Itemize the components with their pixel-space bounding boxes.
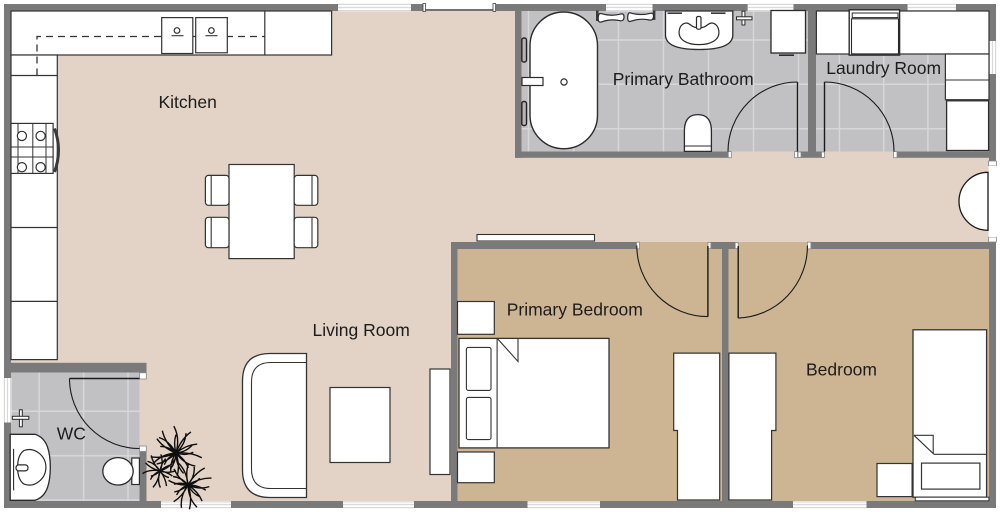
svg-text:Laundry Room: Laundry Room xyxy=(826,58,941,78)
svg-text:WC: WC xyxy=(57,423,86,443)
svg-text:Primary Bathroom: Primary Bathroom xyxy=(613,69,754,89)
svg-text:Kitchen: Kitchen xyxy=(159,92,217,112)
svg-text:Living Room: Living Room xyxy=(313,320,410,340)
svg-text:Bedroom: Bedroom xyxy=(806,360,877,380)
svg-text:Primary Bedroom: Primary Bedroom xyxy=(507,300,643,320)
